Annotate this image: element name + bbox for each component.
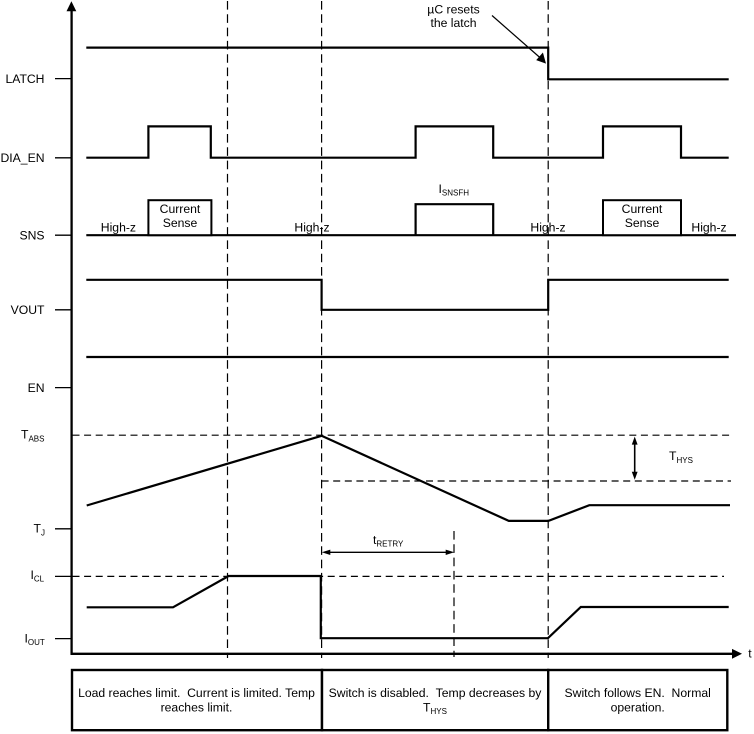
svg-text:High-z: High-z [294,220,329,234]
svg-text:the latch: the latch [430,16,476,30]
svg-text:µC resets: µC resets [427,2,479,16]
svg-text:Switch follows EN. Normal: Switch follows EN. Normal [565,686,711,700]
svg-text:High-z: High-z [530,220,565,234]
svg-text:High-z: High-z [101,220,136,234]
svg-text:Load reaches limit. Current i: Load reaches limit. Current is limited. … [78,686,315,700]
svg-text:Current: Current [622,202,663,216]
svg-text:High-z: High-z [691,220,726,234]
svg-text:LATCH: LATCH [5,72,44,86]
svg-text:Current: Current [160,202,201,216]
svg-text:SNS: SNS [19,229,44,243]
svg-text:EN: EN [28,381,45,395]
svg-text:DIA_EN: DIA_EN [0,151,44,165]
svg-text:VOUT: VOUT [11,303,45,317]
svg-text:Sense: Sense [625,216,660,230]
svg-text:Switch is disabled. Temp decr: Switch is disabled. Temp decreases by [329,686,543,700]
svg-text:operation.: operation. [611,701,665,715]
svg-text:reaches limit.: reaches limit. [161,701,233,715]
svg-text:Sense: Sense [163,216,198,230]
